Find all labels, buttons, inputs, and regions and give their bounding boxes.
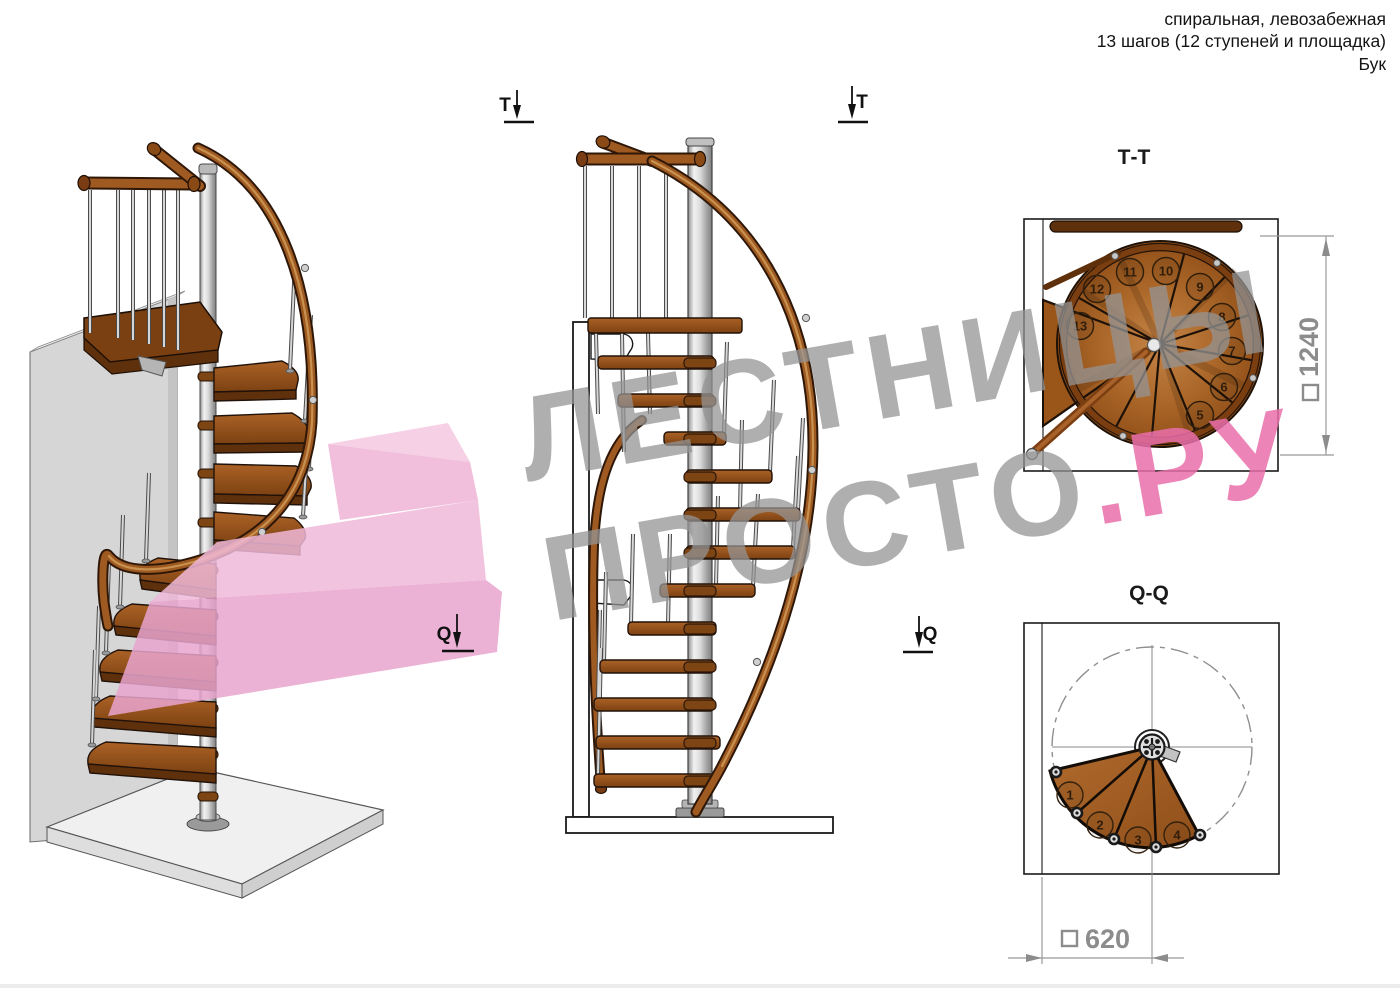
- elevation-floor: [566, 817, 833, 833]
- dimension-label-tt: 1240: [1294, 317, 1324, 400]
- section-marker-q-right: Q: [903, 616, 937, 652]
- page-bottom-divider: [0, 984, 1400, 988]
- section-title-qq: Q-Q: [1129, 582, 1169, 605]
- svg-text:Q: Q: [437, 624, 452, 645]
- step-number: 4: [1173, 828, 1181, 843]
- plan-view-qq: Q-Q: [1008, 582, 1279, 964]
- elevation-top-railing: [577, 134, 706, 167]
- step-number: 6: [1220, 380, 1227, 395]
- step-number: 3: [1134, 833, 1141, 848]
- step-number: 13: [1073, 319, 1087, 334]
- step-number: 5: [1196, 408, 1203, 423]
- drawing-page: { "header": { "line1": "спиральная, лево…: [0, 0, 1400, 988]
- step-number: 10: [1159, 264, 1173, 279]
- pole-plan-qq: [1140, 735, 1165, 760]
- technical-drawing: Т-Т: [0, 0, 1400, 988]
- section-marker-t-left: Т: [499, 90, 534, 122]
- step-number: 12: [1090, 282, 1104, 297]
- step-number: 9: [1196, 280, 1203, 295]
- svg-text:Q: Q: [923, 624, 938, 645]
- svg-text:Т: Т: [856, 92, 868, 113]
- landing-rail-plan: [1050, 221, 1242, 232]
- view-3d: [30, 140, 502, 898]
- square-section-icon: [1062, 931, 1077, 946]
- step-number: 7: [1228, 344, 1235, 359]
- section-title-tt: Т-Т: [1118, 146, 1151, 169]
- svg-text:1240: 1240: [1294, 317, 1324, 377]
- elevation-view: [566, 134, 833, 833]
- dimension-label-qq: 620: [1062, 924, 1130, 954]
- step-number: 11: [1123, 265, 1137, 280]
- section-marker-t-right: Т: [838, 86, 868, 122]
- step-number: 2: [1096, 818, 1103, 833]
- plan-view-tt: Т-Т: [1024, 146, 1334, 471]
- svg-text:620: 620: [1085, 924, 1130, 954]
- svg-text:Т: Т: [499, 95, 511, 116]
- step-number: 8: [1218, 310, 1225, 325]
- elevation-handrail-right: [652, 161, 816, 812]
- pole-finial-tt: [1148, 339, 1161, 352]
- square-section-icon: [1303, 385, 1318, 400]
- step-number: 1: [1066, 788, 1073, 803]
